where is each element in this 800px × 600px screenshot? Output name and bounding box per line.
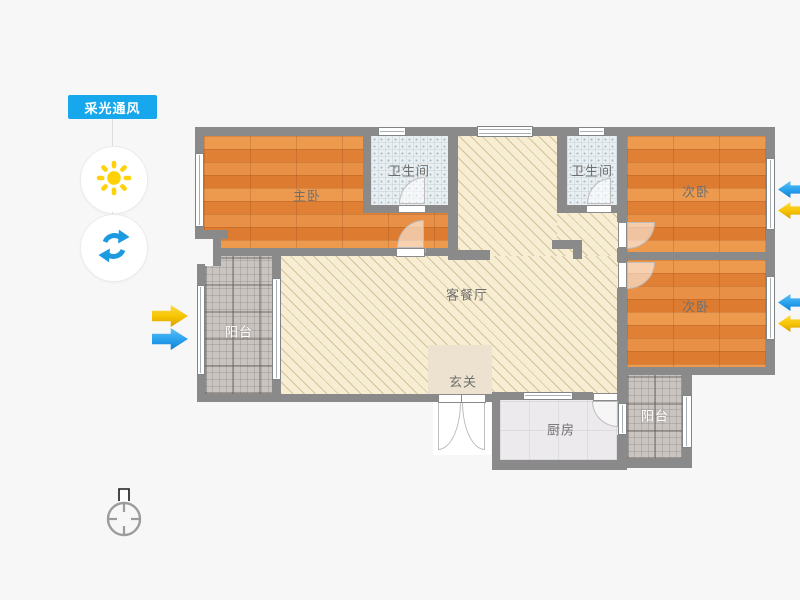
room-label-bathroom-1: 卫生间 — [388, 161, 430, 180]
sliding-door-balcony-left — [272, 278, 281, 380]
wall — [617, 136, 627, 222]
refresh-icon — [96, 228, 132, 269]
wall — [448, 136, 458, 260]
window-balcony-right — [682, 395, 692, 448]
ventilation-arrow-left — [152, 328, 188, 350]
wall — [573, 249, 582, 259]
room-label-bathroom-2: 卫生间 — [571, 161, 613, 180]
wall — [492, 392, 500, 470]
door-kitchen — [593, 393, 618, 401]
sunlight-toggle-button[interactable] — [80, 146, 148, 214]
room-label-bedroom-a: 次卧 — [682, 182, 710, 201]
sunlight-arrow-right-bottom — [778, 315, 800, 332]
wall — [213, 239, 221, 266]
door-bedroom-b — [618, 262, 627, 288]
floorplan-viewer: 主卧 卫生间 卫生间 次卧 次卧 客餐厅 玄关 阳台 阳台 厨房 采光通风 — [0, 0, 800, 600]
window-master-bedroom — [195, 153, 204, 227]
ventilation-arrow-right-top — [778, 181, 800, 198]
door-bathroom-1 — [398, 205, 426, 213]
window-bathroom-2 — [578, 127, 605, 136]
compass-north-icon — [100, 486, 148, 538]
room-label-kitchen: 厨房 — [547, 420, 575, 439]
room-label-master-bedroom: 主卧 — [293, 186, 321, 205]
rotate-ventilation-button[interactable] — [80, 214, 148, 282]
wall — [363, 136, 371, 213]
window-living-top — [477, 126, 533, 137]
room-living-column — [458, 136, 557, 260]
wall — [448, 250, 490, 260]
wall — [272, 248, 281, 278]
wall — [197, 394, 438, 402]
room-label-balcony-right: 阳台 — [641, 406, 669, 425]
outside-notch — [195, 238, 213, 266]
window-kitchen — [523, 392, 573, 400]
room-label-living-dining: 客餐厅 — [446, 285, 488, 304]
wall — [618, 458, 692, 468]
room-label-balcony-left: 阳台 — [225, 322, 253, 341]
wall — [557, 205, 586, 213]
room-label-bedroom-b: 次卧 — [682, 297, 710, 316]
door-master-bedroom — [396, 248, 425, 257]
entrance-door-leaf-left — [438, 394, 462, 403]
entrance-door-leaf-right — [461, 394, 486, 403]
wall — [195, 230, 228, 239]
wall — [363, 205, 398, 213]
mode-badge-lighting-ventilation[interactable]: 采光通风 — [68, 95, 157, 119]
window-balcony-left — [197, 285, 205, 375]
sun-icon — [94, 158, 134, 203]
window-kitchen-balcony — [618, 403, 627, 435]
sunlight-arrow-right-top — [778, 202, 800, 219]
wall — [627, 367, 775, 375]
room-label-foyer: 玄关 — [449, 372, 477, 391]
wall — [492, 460, 627, 470]
sunlight-arrow-left — [152, 305, 188, 327]
wall — [617, 248, 627, 262]
wall — [617, 288, 627, 403]
wall — [221, 248, 396, 256]
window-bedroom-a — [766, 158, 775, 230]
door-bathroom-2 — [586, 205, 612, 213]
window-bedroom-b — [766, 276, 775, 340]
connector-line — [112, 119, 113, 146]
wall — [557, 136, 567, 213]
window-bathroom-1 — [378, 127, 406, 136]
door-bedroom-a — [618, 222, 627, 248]
wall — [627, 252, 766, 260]
wall — [552, 240, 582, 249]
ventilation-arrow-right-bottom — [778, 294, 800, 311]
